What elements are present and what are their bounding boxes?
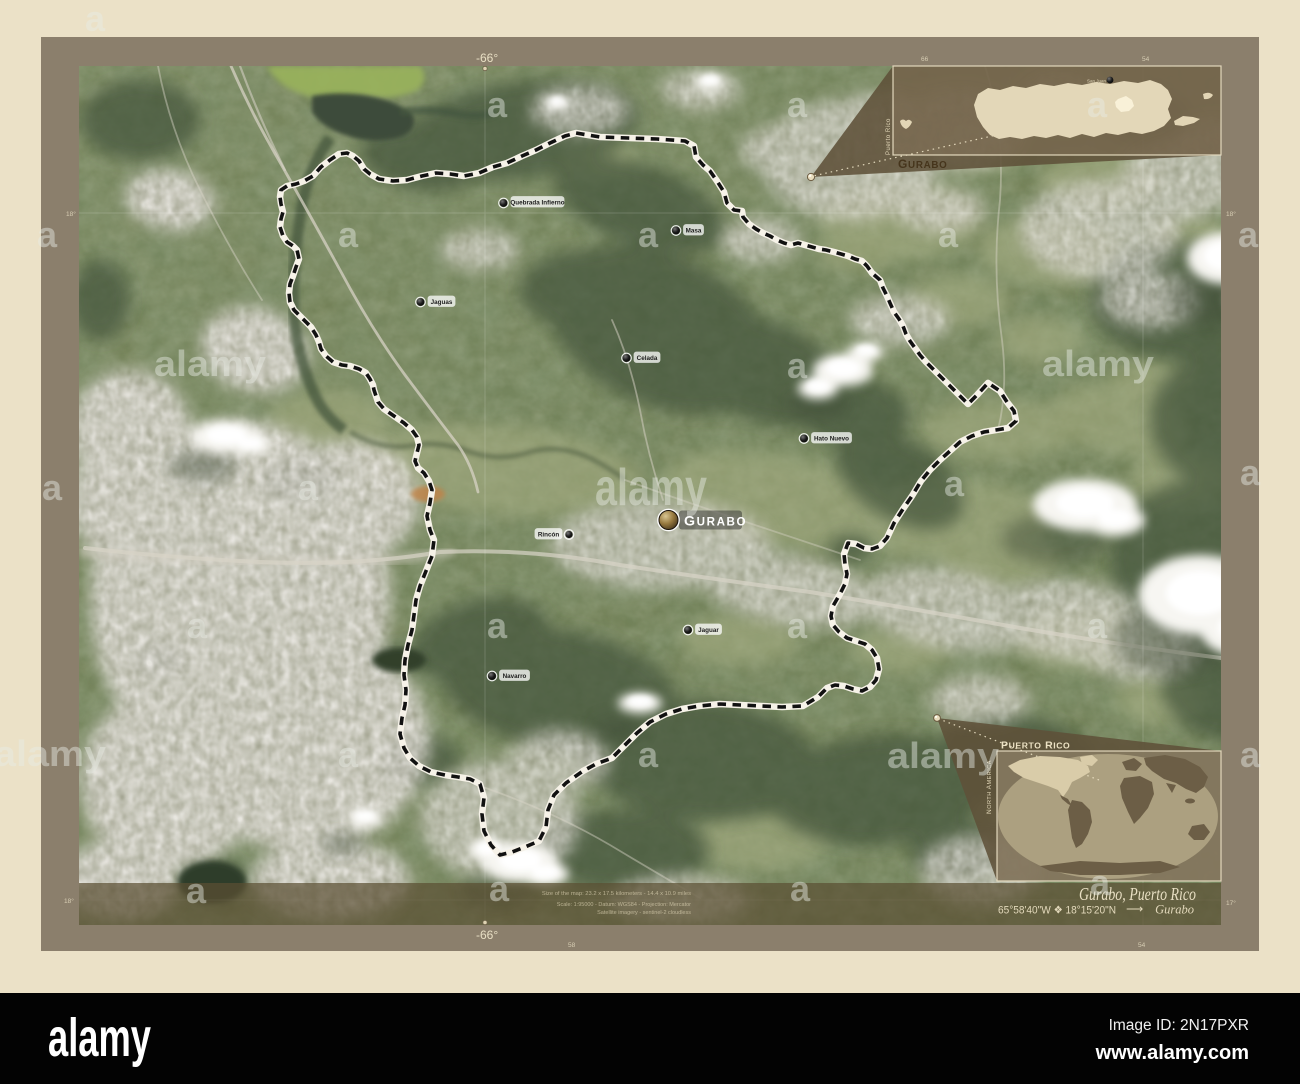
svg-text:a: a xyxy=(338,734,359,775)
svg-text:54: 54 xyxy=(1138,942,1146,949)
svg-text:Hato Nuevo: Hato Nuevo xyxy=(814,436,849,443)
svg-text:San Juan: San Juan xyxy=(1087,79,1107,84)
svg-text:a: a xyxy=(298,467,319,508)
svg-text:Gurabo: Gurabo xyxy=(1155,903,1194,917)
svg-text:18°: 18° xyxy=(64,897,74,905)
svg-text:18°: 18° xyxy=(1226,210,1236,218)
svg-text:Jaguar: Jaguar xyxy=(698,627,719,634)
svg-text:a: a xyxy=(787,605,808,646)
svg-text:Image ID: 2N17PXR: Image ID: 2N17PXR xyxy=(1109,1017,1249,1034)
svg-text:Quebrada Infierno: Quebrada Infierno xyxy=(510,200,564,207)
svg-text:alamy: alamy xyxy=(48,1008,151,1068)
svg-text:a: a xyxy=(787,84,808,125)
svg-text:alamy: alamy xyxy=(1042,343,1154,384)
svg-text:PUERTO RICO: PUERTO RICO xyxy=(1001,740,1070,752)
svg-text:GURABO: GURABO xyxy=(898,157,947,171)
svg-text:Scale: 1:95000 - Datum: WGS84: Scale: 1:95000 - Datum: WGS84 - Projecti… xyxy=(557,902,691,908)
svg-text:-66°: -66° xyxy=(476,928,498,942)
svg-text:a: a xyxy=(1240,734,1261,775)
svg-text:www.alamy.com: www.alamy.com xyxy=(1095,1042,1249,1064)
svg-text:a: a xyxy=(85,0,106,39)
svg-text:⟶: ⟶ xyxy=(1126,902,1143,916)
svg-text:58: 58 xyxy=(568,942,576,949)
svg-text:Size of the map: 23.2 x 17.5 k: Size of the map: 23.2 x 17.5 kilometers … xyxy=(542,891,691,897)
svg-text:a: a xyxy=(638,734,659,775)
svg-text:Celada: Celada xyxy=(637,355,658,362)
svg-text:-66°: -66° xyxy=(476,51,498,65)
svg-text:a: a xyxy=(638,214,659,255)
svg-text:alamy: alamy xyxy=(887,735,999,776)
svg-text:18°: 18° xyxy=(66,210,76,218)
svg-text:a: a xyxy=(1087,84,1108,125)
svg-text:a: a xyxy=(787,345,808,386)
svg-text:a: a xyxy=(186,870,207,911)
svg-text:Rincón: Rincón xyxy=(538,532,559,539)
svg-text:a: a xyxy=(338,214,359,255)
svg-text:alamy: alamy xyxy=(595,459,707,517)
svg-text:a: a xyxy=(187,605,208,646)
svg-text:Satellite imagery - sentinel-2: Satellite imagery - sentinel-2 cloudless xyxy=(597,910,691,916)
svg-text:a: a xyxy=(487,84,508,125)
svg-text:a: a xyxy=(944,463,965,504)
svg-text:Navarro: Navarro xyxy=(503,673,527,680)
svg-text:17°: 17° xyxy=(1226,899,1236,907)
svg-text:66: 66 xyxy=(921,56,929,63)
svg-text:a: a xyxy=(42,467,63,508)
svg-text:a: a xyxy=(37,214,58,255)
svg-text:Masa: Masa xyxy=(686,228,702,235)
svg-text:a: a xyxy=(489,868,510,909)
svg-text:a: a xyxy=(790,868,811,909)
svg-text:a: a xyxy=(1240,452,1261,493)
svg-text:alamy: alamy xyxy=(154,343,266,384)
svg-text:a: a xyxy=(938,214,959,255)
svg-text:a: a xyxy=(487,605,508,646)
svg-text:alamy: alamy xyxy=(0,733,106,774)
svg-text:54: 54 xyxy=(1142,56,1150,63)
svg-text:Puerto Rico: Puerto Rico xyxy=(886,118,892,155)
svg-text:Jaguas: Jaguas xyxy=(431,299,453,306)
svg-text:a: a xyxy=(1090,862,1111,903)
svg-text:65°58'40"W ❖ 18°15'20"N: 65°58'40"W ❖ 18°15'20"N xyxy=(998,905,1116,917)
svg-text:a: a xyxy=(1238,214,1259,255)
svg-text:a: a xyxy=(1087,605,1108,646)
